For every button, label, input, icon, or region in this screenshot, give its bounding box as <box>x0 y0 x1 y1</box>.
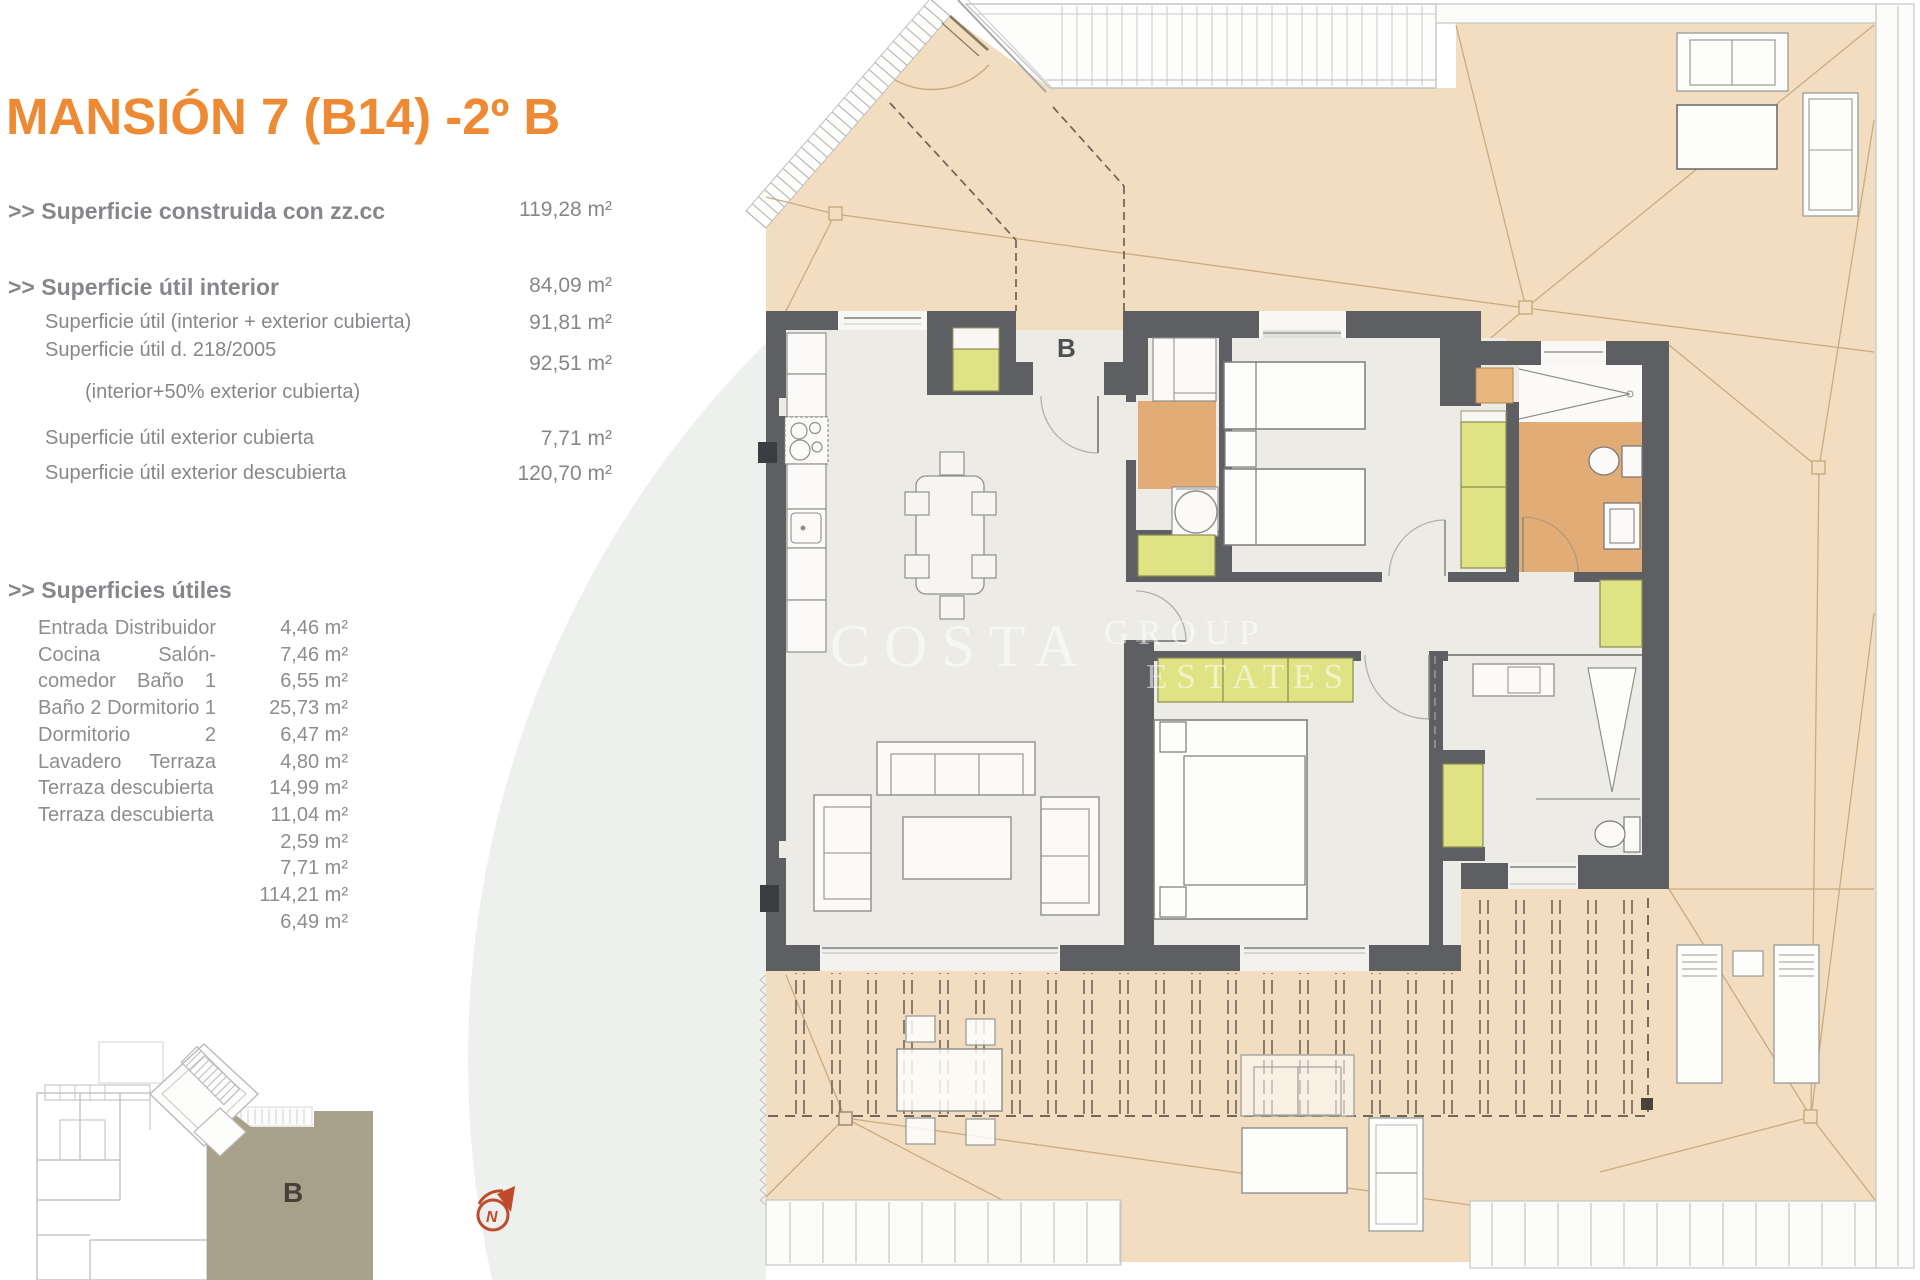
svg-text:ESTATES: ESTATES <box>1146 657 1352 696</box>
svg-text:B: B <box>1057 333 1076 363</box>
svg-text:GROUP: GROUP <box>1104 613 1268 652</box>
svg-text:COSTA: COSTA <box>830 613 1092 679</box>
svg-text:N: N <box>486 1209 498 1226</box>
svg-text:B: B <box>283 1177 303 1208</box>
